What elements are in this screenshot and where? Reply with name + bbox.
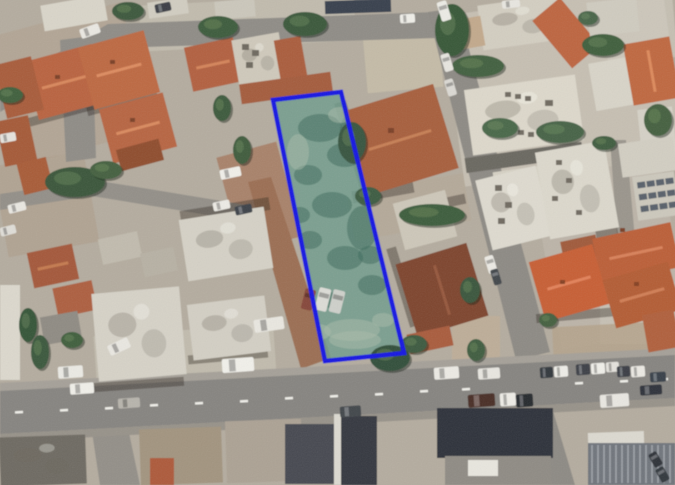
satellite-scene [0, 0, 675, 485]
photo-grain-overlay [0, 0, 675, 485]
satellite-image [0, 0, 675, 485]
